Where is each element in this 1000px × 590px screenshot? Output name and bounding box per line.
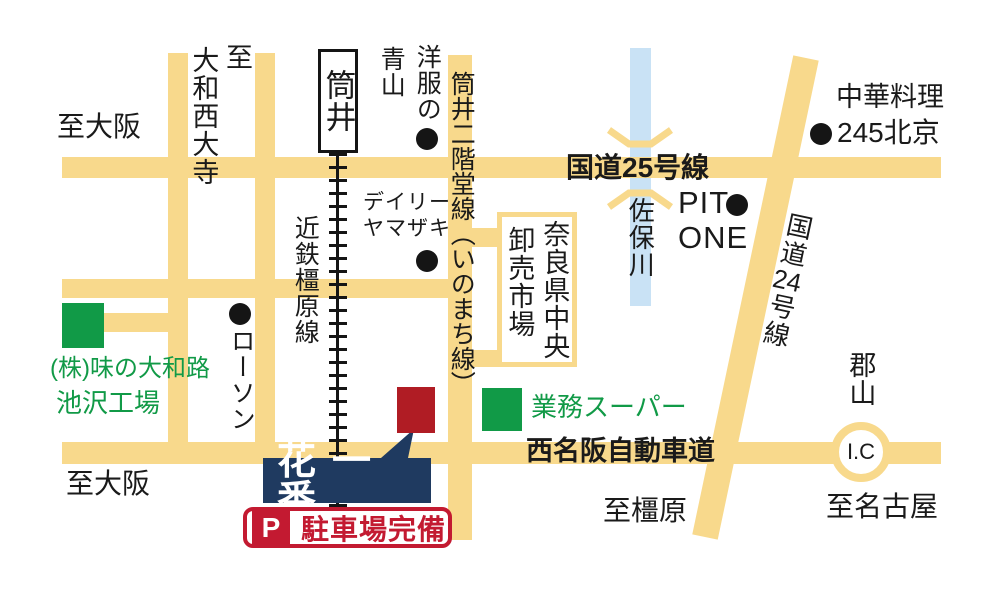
parking-label: 駐車場完備 <box>301 508 446 548</box>
ic-label: I.C <box>847 439 875 465</box>
daily-yamazaki-label-line2: ヤマザキ <box>363 218 451 240</box>
lawson-label: ローソン <box>228 328 254 432</box>
market-label-col1: 奈良県中央 <box>540 220 568 360</box>
pekin-label-line2: 245北京 <box>837 118 940 147</box>
tsutsui-station-label: 筒井 <box>316 69 361 133</box>
tsutsui-station-box: 筒井 <box>318 49 358 153</box>
daily-yamazaki-label-line1: デイリー <box>363 192 451 214</box>
saho-river-label: 佐保川 <box>626 197 653 278</box>
shop-marker <box>397 387 435 433</box>
ajino-yamatoji-label-line2: 池沢工場 <box>56 390 160 417</box>
daily-yamazaki-dot <box>416 250 438 272</box>
ajino-yamatoji-label-line1: (株)味の大和路 <box>50 356 210 381</box>
kintetsu-line-label: 近鉄橿原線 <box>292 215 318 345</box>
nishimeihan-label: 西名阪自動車道 <box>526 437 715 465</box>
market-label-col2: 卸売市場 <box>505 226 533 338</box>
lawson-dot <box>229 303 251 325</box>
parking-p-icon: P <box>252 511 290 544</box>
aoyama-label-col2: 青山 <box>378 46 404 98</box>
parking-badge: P 駐車場完備 <box>243 507 452 548</box>
ajino-yamatoji-square <box>62 303 104 348</box>
shop-name-box: 花一番 <box>263 458 431 503</box>
aoyama-label-col1: 洋服の <box>414 44 440 122</box>
pit-one-label-line1: PIT <box>678 187 729 220</box>
gyomu-super-label: 業務スーパー <box>531 394 687 421</box>
pekin-dot <box>810 123 832 145</box>
to-nagoya-label: 至名古屋 <box>826 492 938 521</box>
to-saidaiji-prefix-label: 至 <box>226 44 253 72</box>
to-saidaiji-label: 大和西大寺 <box>189 46 217 186</box>
to-osaka-bottom-label: 至大阪 <box>66 469 150 498</box>
pekin-label-line1: 中華料理 <box>836 83 944 111</box>
pit-one-dot <box>726 194 748 216</box>
access-map: 筒井 奈良県中央 卸売市場 I.C 至大阪 国道25号線 中華料理 245北京 … <box>0 0 1000 590</box>
koriyama-label: 郡山 <box>846 351 874 407</box>
to-osaka-top-label: 至大阪 <box>57 112 141 141</box>
ic-badge: I.C <box>831 422 891 482</box>
pit-one-label-line2: ONE <box>678 222 748 255</box>
bridge-mark-upper <box>609 130 671 144</box>
to-kashihara-label: 至橿原 <box>603 496 687 525</box>
inomachi-line-label: 筒井二階堂線（いのまち線） <box>448 71 474 396</box>
gyomu-super-square <box>482 388 522 431</box>
aoyama-dot <box>416 128 438 150</box>
route25-label: 国道25号線 <box>566 153 709 182</box>
